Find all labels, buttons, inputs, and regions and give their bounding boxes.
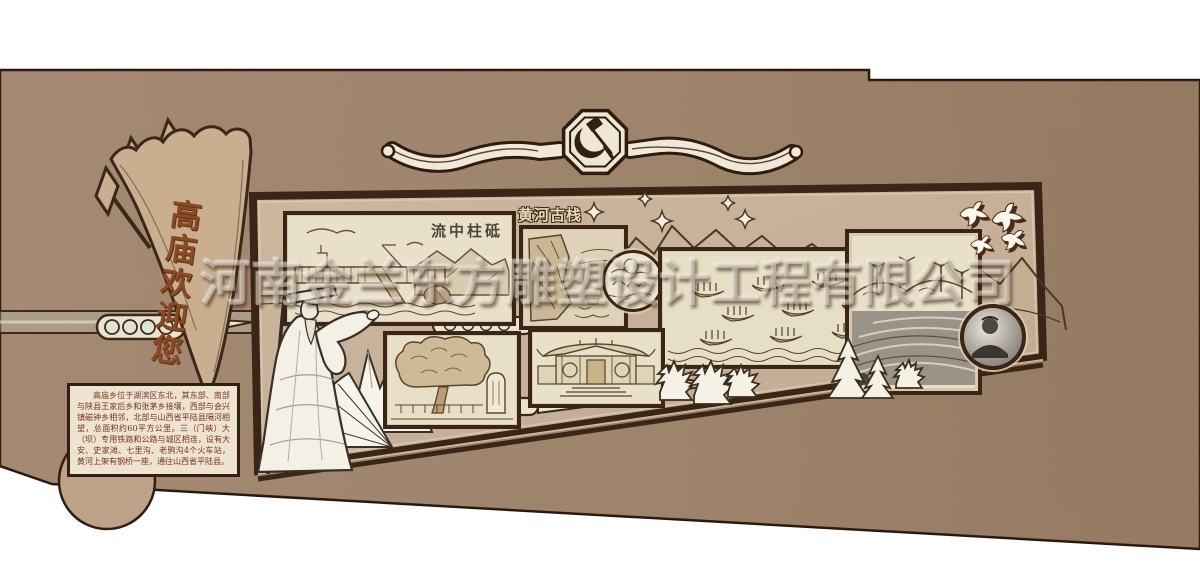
picture-wind-farm-scene xyxy=(845,229,982,395)
picture-temple-scene xyxy=(528,328,665,408)
portrait-photo-medallion xyxy=(960,304,1026,370)
info-text-box: 高庙乡位于湖滨区东北，其东部、南部与陕县王家后乡和张茅乡接壤，西部与会兴镇磁钟乡… xyxy=(67,383,240,477)
picture-dam-scene: 流中柱砥 xyxy=(283,211,516,326)
person-photo xyxy=(964,308,1014,358)
info-paragraph: 高庙乡位于湖滨区东北，其东部、南部与陕县王家后乡和张茅乡接壤，西部与会兴镇磁钟乡… xyxy=(77,390,230,467)
party-emblem-badge xyxy=(564,111,627,174)
ink-landscape-medallion xyxy=(602,250,664,312)
picture-ancient-tree-scene xyxy=(383,331,521,429)
design-canvas: 流中柱砥 黄河古栈 xyxy=(0,0,1200,567)
dam-caption: 流中柱砥 xyxy=(431,220,503,241)
tree-artwork xyxy=(387,335,517,425)
temple-artwork xyxy=(532,332,661,404)
cliff-title: 黄河古栈 xyxy=(518,204,582,225)
ink-landscape-artwork xyxy=(605,253,655,303)
windfarm-artwork xyxy=(849,233,978,391)
